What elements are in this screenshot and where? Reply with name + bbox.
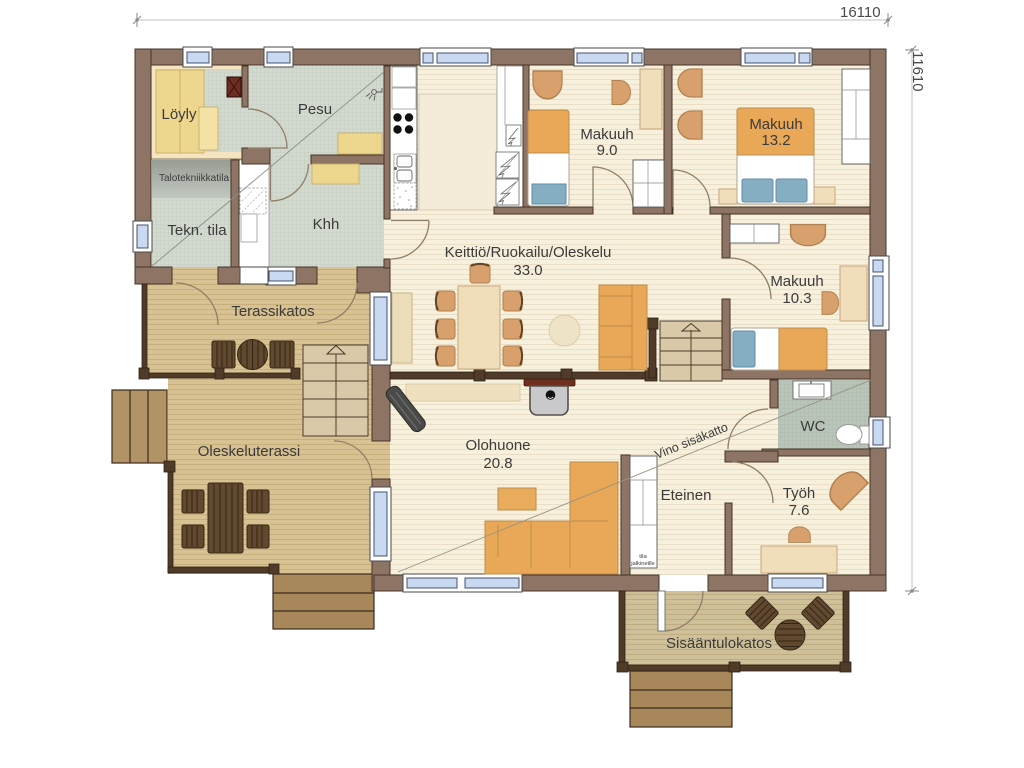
svg-text:Keittiö/Ruokailu/Oleskelu: Keittiö/Ruokailu/Oleskelu xyxy=(445,244,612,261)
svg-text:Makuuh: Makuuh xyxy=(770,273,823,290)
svg-text:13.2: 13.2 xyxy=(761,132,790,149)
svg-text:Makuuh: Makuuh xyxy=(580,126,633,143)
svg-text:Työh: Työh xyxy=(783,485,816,502)
svg-text:7.6: 7.6 xyxy=(789,502,810,519)
svg-text:Eteinen: Eteinen xyxy=(661,487,712,504)
svg-text:Terassikatos: Terassikatos xyxy=(231,303,314,320)
svg-text:WC: WC xyxy=(801,418,826,435)
svg-text:10.3: 10.3 xyxy=(782,290,811,307)
svg-text:Makuuh: Makuuh xyxy=(749,116,802,133)
svg-text:Sisääntulokatos: Sisääntulokatos xyxy=(666,635,772,652)
svg-text:Tekn. tila: Tekn. tila xyxy=(167,222,227,239)
svg-text:Talotekniikkatila: Talotekniikkatila xyxy=(159,173,229,184)
svg-text:33.0: 33.0 xyxy=(513,262,542,279)
svg-text:Oleskeluterassi: Oleskeluterassi xyxy=(198,443,301,460)
svg-text:jalkineille: jalkineille xyxy=(630,561,655,567)
svg-text:Pesu: Pesu xyxy=(298,101,332,118)
svg-text:Khh: Khh xyxy=(313,216,340,233)
svg-text:tila: tila xyxy=(639,554,647,560)
svg-text:11610: 11610 xyxy=(909,51,926,92)
svg-text:20.8: 20.8 xyxy=(483,455,512,472)
svg-text:Olohuone: Olohuone xyxy=(465,437,530,454)
svg-text:9.0: 9.0 xyxy=(597,142,618,159)
svg-text:Löyly: Löyly xyxy=(161,106,197,123)
svg-text:16110: 16110 xyxy=(840,4,881,21)
